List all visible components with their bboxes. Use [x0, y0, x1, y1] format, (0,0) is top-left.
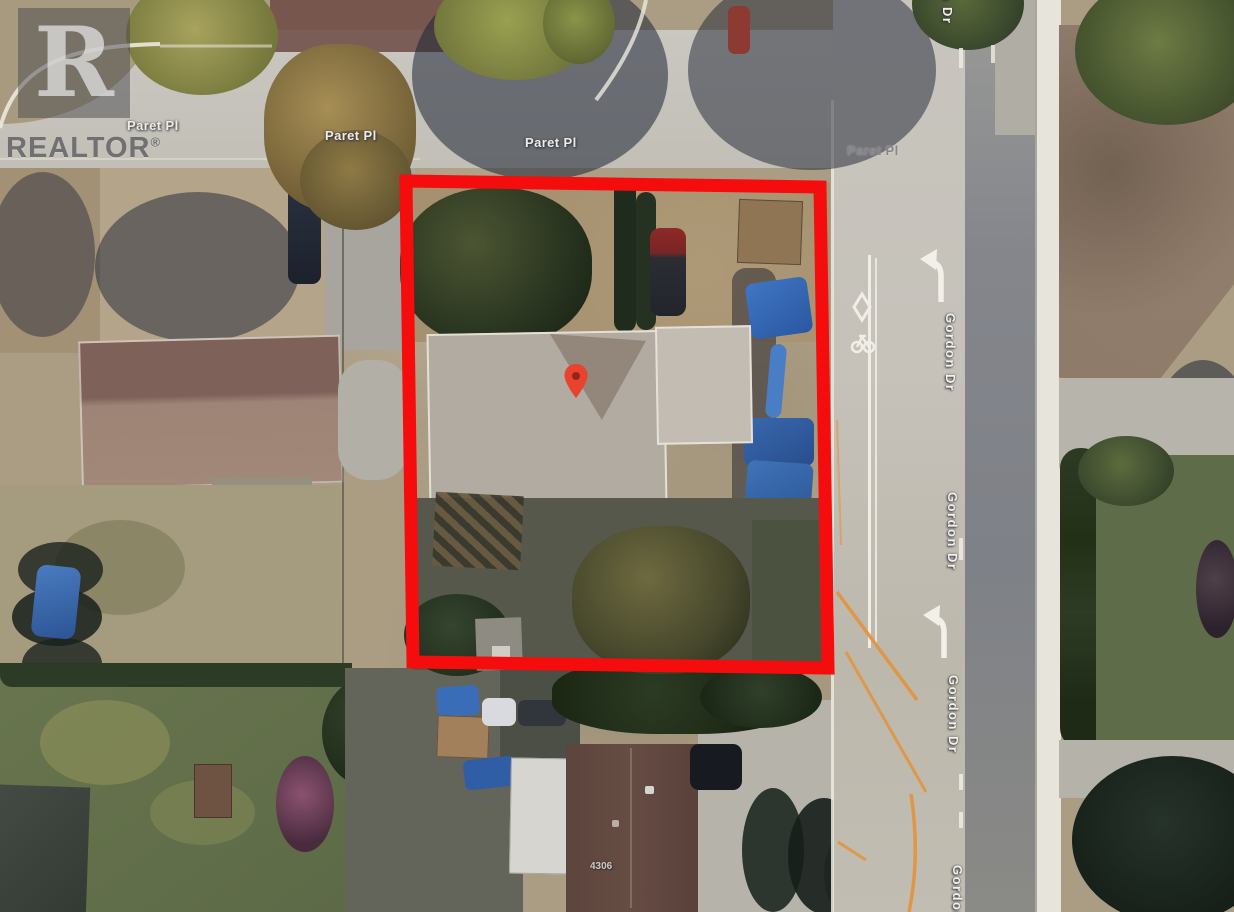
registered-symbol: ® [150, 134, 161, 149]
street-label-gordon-dr: Gordon Dr [940, 0, 955, 25]
street-label-paret-pl: Paret Pl [325, 128, 377, 143]
street-label-gordon-dr: Gordon Dr [945, 492, 960, 571]
realtor-logo-letter: R [34, 15, 114, 111]
street-label-paret-pl: Paret Pl [847, 143, 899, 158]
street-label-gordon-dr: Gordon Dr [943, 313, 958, 392]
property-outline [406, 181, 828, 668]
satellite-map-canvas: Paret Pl Paret Pl Paret Pl Paret Pl Gord… [0, 0, 1234, 912]
house-number-label: 4306 [590, 861, 612, 872]
street-label-gordon-dr: Gordon Dr [946, 675, 961, 754]
street-label-gordon-dr: Gordon Dr [950, 865, 965, 912]
street-label-paret-pl: Paret Pl [525, 135, 577, 150]
annotation-overlay [0, 0, 1234, 912]
realtor-logo-icon: R [18, 8, 130, 118]
realtor-watermark: R REALTOR® [6, 8, 161, 165]
location-pin-icon [565, 364, 588, 398]
realtor-brand-text: REALTOR [6, 132, 150, 164]
